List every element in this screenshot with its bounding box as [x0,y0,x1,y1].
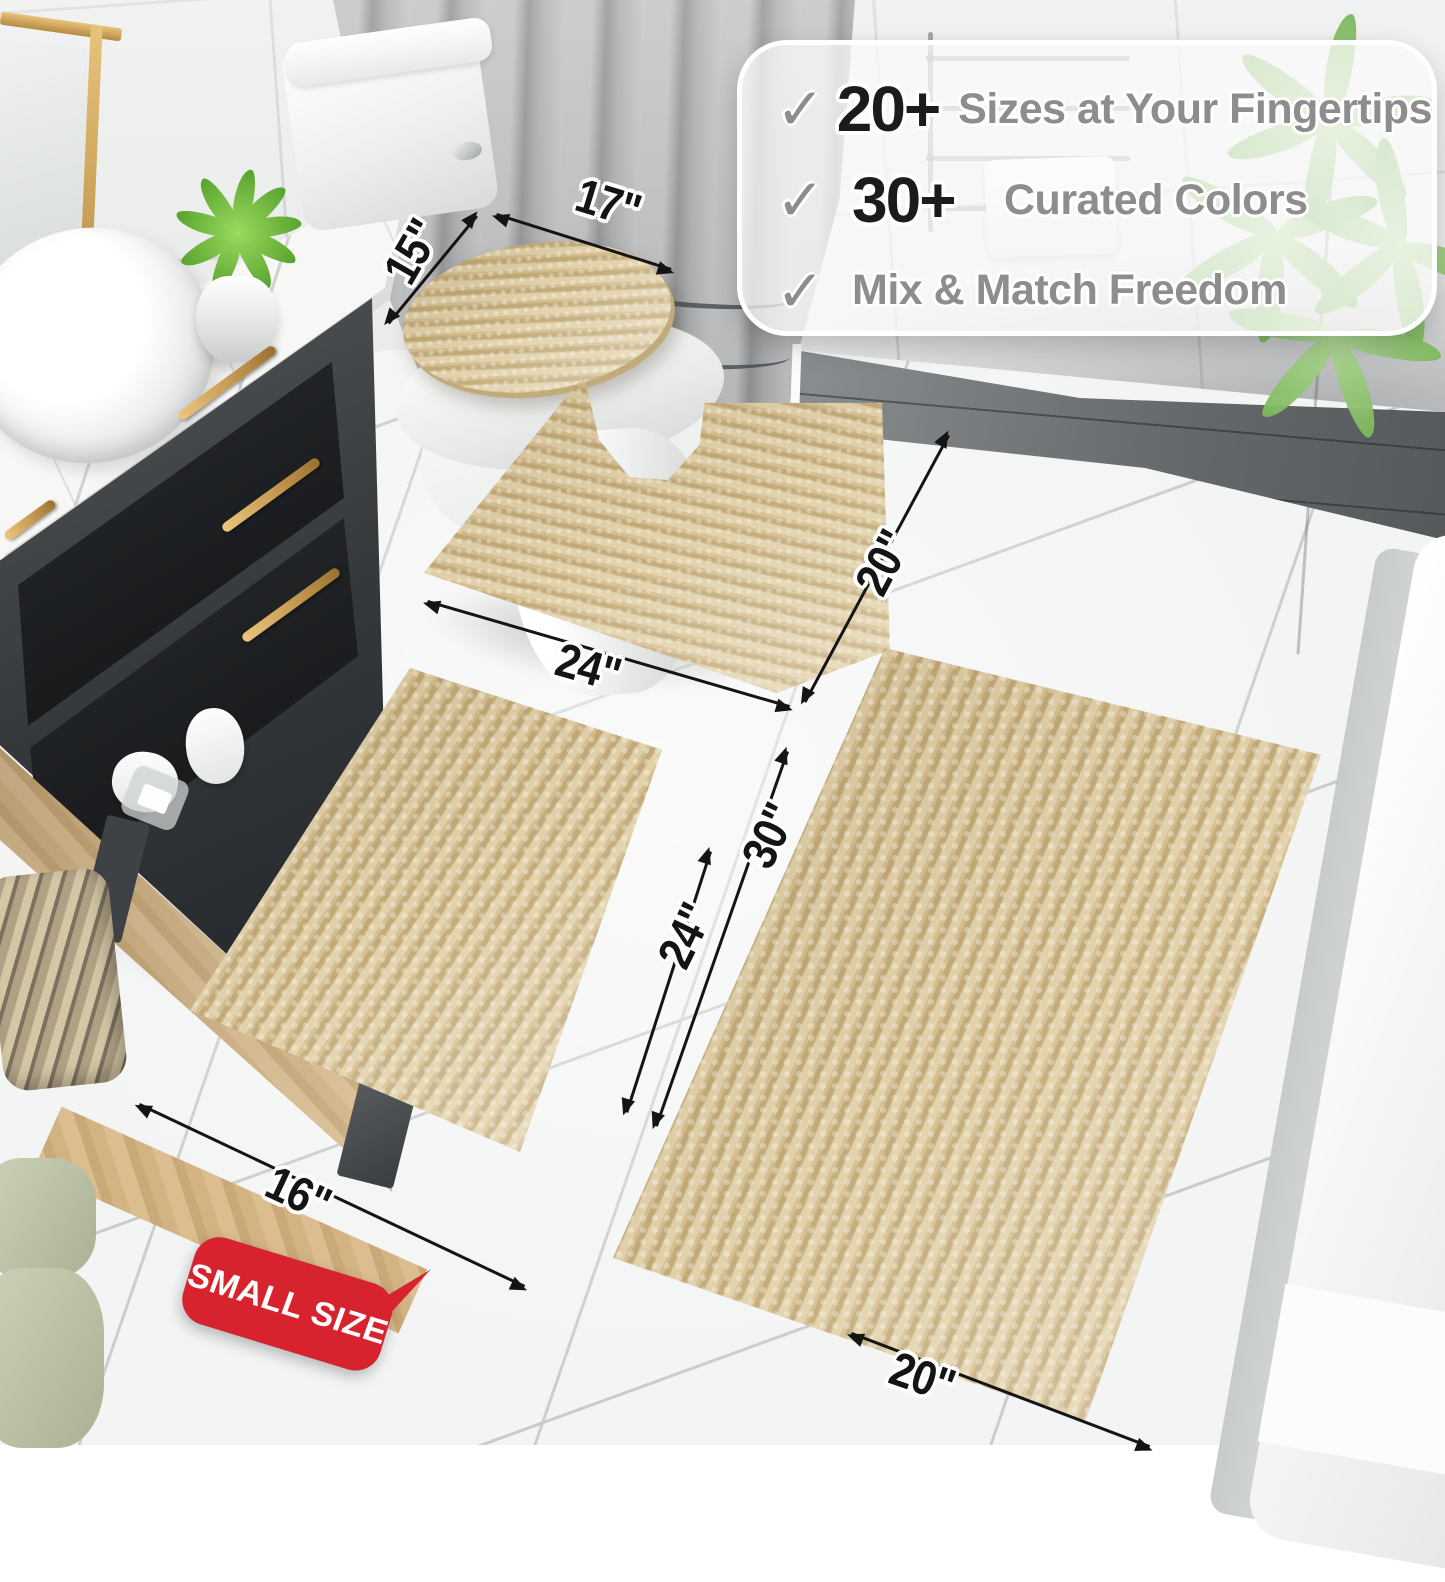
callout-label: Sizes at Your Fingertips [958,85,1432,134]
callout-label: Mix & Match Freedom [852,266,1287,315]
callout-stat: 20+ [837,72,958,146]
bottle-label [137,783,173,815]
check-icon: ✓ [776,257,852,325]
check-icon: ✓ [776,166,852,234]
callout-row: ✓ Mix & Match Freedom [776,250,1432,331]
woven-basket [0,866,129,1093]
badge-text: SMALL SIZE [182,1255,393,1352]
feature-callout: ✓ 20+ Sizes at Your Fingertips ✓ 30+ Cur… [737,40,1437,336]
callout-label: Curated Colors [1004,176,1308,225]
folded-towels [0,1158,96,1278]
check-icon: ✓ [776,75,837,143]
folded-towels [0,1268,104,1448]
callout-row: ✓ 30+ Curated Colors [776,160,1432,241]
callout-row: ✓ 20+ Sizes at Your Fingertips [776,69,1432,150]
callout-stat: 30+ [852,163,1004,237]
